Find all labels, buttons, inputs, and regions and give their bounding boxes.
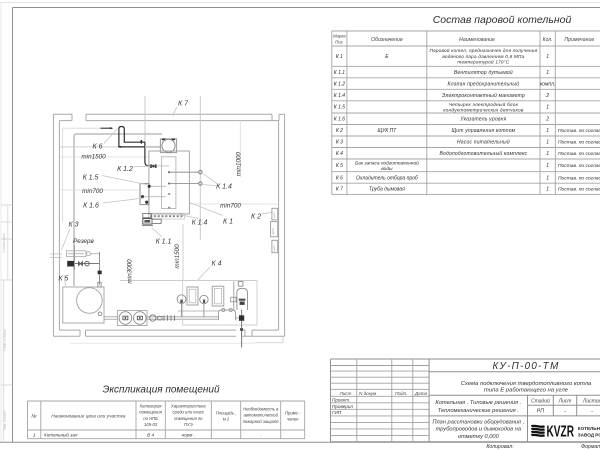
svg-text:Вентилятор дутьевой: Вентилятор дутьевой [454,69,513,76]
svg-text:К 4: К 4 [336,151,343,157]
svg-text:кондуктометрических датчиков: кондуктометрических датчиков [443,108,524,114]
svg-text:К 5: К 5 [336,163,343,169]
svg-text:Дата: Дата [414,391,428,396]
svg-text:Инв. N подл.: Инв. N подл. [3,410,7,430]
svg-text:Наименование: Наименование [459,37,495,43]
svg-text:min700: min700 [220,203,241,210]
svg-text:Площадь ,: Площадь , [216,411,237,416]
svg-text:ЩУК ПТ: ЩУК ПТ [377,128,397,134]
svg-text:Щит управления котлом: Щит управления котлом [451,128,515,134]
svg-text:Постав. по соглас: Постав. по соглас [558,175,600,181]
svg-text:1: 1 [546,128,549,134]
svg-text:ГИП: ГИП [332,410,342,415]
svg-text:К 1.4: К 1.4 [334,93,346,99]
svg-text:105-03: 105-03 [144,422,158,427]
svg-text:Приме -: Приме - [285,411,301,416]
svg-text:В 4: В 4 [147,432,154,437]
svg-text:Подп. и дата: Подп. и дата [3,329,7,350]
svg-text:Постав. по соглас: Постав. по соглас [558,140,600,146]
svg-text:щит: щит [272,212,276,219]
svg-text:2: 2 [545,117,549,123]
svg-text:Указатель уровня: Указатель уровня [460,117,506,123]
svg-text:К 2: К 2 [336,128,343,134]
svg-text:К 5: К 5 [58,276,68,283]
svg-text:2: 2 [545,93,549,99]
svg-text:min700: min700 [82,188,103,195]
svg-text:Тепломеханические решения .: Тепломеханические решения . [438,408,519,414]
svg-text:Четырех электродный блок: Четырех электродный блок [449,101,519,108]
svg-text:-: - [564,409,566,415]
svg-text:пожарной защите: пожарной защите [243,419,280,424]
svg-text:К 6: К 6 [93,144,103,151]
svg-text:КУ-П-00-ТМ: КУ-П-00-ТМ [492,361,559,372]
svg-text:-: - [260,432,262,437]
svg-text:Постав. по соглас: Постав. по соглас [558,128,600,134]
svg-text:KVZR: KVZR [547,423,575,440]
svg-text:Листов: Листов [582,399,600,405]
svg-text:Котельная . Типовые решения .: Котельная . Типовые решения . [435,400,521,406]
svg-text:Проверил: Проверил [332,404,353,409]
svg-text:Характеристика: Характеристика [170,404,206,409]
svg-text:трубопроводов и дымоходов на: трубопроводов и дымоходов на [436,427,521,433]
svg-text:компл.: компл. [540,81,556,87]
svg-text:1: 1 [546,175,549,181]
svg-text:КОТЕЛЬНЫЙ: КОТЕЛЬНЫЙ [578,424,600,431]
svg-text:№: № [31,414,36,420]
svg-text:Труба дымовая: Труба дымовая [369,187,405,193]
svg-text:водяного пара давлением 0,8: водяного пара давлением 0,8 МПа [442,54,524,59]
svg-text:щит: щит [272,245,276,252]
svg-text:Постав. по соглас: Постав. по соглас [558,187,600,193]
svg-text:1: 1 [546,163,549,169]
svg-text:Паровой котел, предназначен дл: Паровой котел, предназначен для получени… [429,47,537,53]
svg-text:Бак запаса подготовленной: Бак запаса подготовленной [355,159,419,166]
svg-text:по НПБ: по НПБ [143,416,158,421]
svg-text:К 1.1: К 1.1 [156,238,172,245]
svg-text:Котельный зал: Котельный зал [44,431,78,437]
svg-text:К 1: К 1 [336,54,343,60]
svg-text:Резерв: Резерв [73,238,94,245]
svg-text:чание: чание [287,417,299,422]
svg-text:N докум: N докум [359,391,377,396]
svg-text:Копировал:: Копировал: [486,444,514,450]
svg-text:1: 1 [546,140,549,146]
svg-text:Примечание: Примечание [564,37,594,43]
svg-text:Марка: Марка [333,34,346,39]
svg-text:К 1.6: К 1.6 [334,117,346,123]
svg-text:воды: воды [381,166,393,172]
svg-text:Наименование цеха или участка: Наименование цеха или участка [51,414,126,420]
svg-text:Охладитель отбора проб: Охладитель отбора проб [356,175,418,181]
svg-text:К 1.2: К 1.2 [117,166,133,173]
svg-text:Экспликация помещений: Экспликация помещений [102,385,220,396]
svg-text:1: 1 [546,187,549,193]
svg-text:Согласовано: Согласовано [2,233,6,253]
svg-text:Проект.: Проект. [332,397,350,402]
svg-text:среди или класс: среди или класс [173,410,205,415]
svg-text:К 2: К 2 [251,214,261,221]
svg-text:Постав. по соглас: Постав. по соглас [558,151,600,157]
svg-text:1: 1 [546,105,549,111]
svg-text:Водоподготовительный комплекс: Водоподготовительный комплекс [440,150,528,157]
svg-text:К 1.4: К 1.4 [192,220,208,227]
svg-text:ЩУК: ЩУК [271,228,275,234]
svg-text:Электроконтактный манометр: Электроконтактный манометр [442,92,525,99]
svg-text:-: - [591,409,593,415]
svg-text:Схема подключения твердотоплив: Схема подключения твердотопливного котла [461,381,592,387]
svg-text:К 1.2: К 1.2 [334,81,346,87]
svg-text:К 3: К 3 [69,222,79,229]
svg-text:Категория: Категория [140,404,163,409]
svg-text:К 1.4: К 1.4 [216,183,232,190]
svg-text:Е: Е [385,54,389,60]
svg-text:Подп.: Подп. [395,391,407,396]
svg-text:автоматической: автоматической [243,413,278,418]
svg-text:Постав. по соглас: Постав. по соглас [558,163,600,169]
svg-text:План расстановки оборудования: План расстановки оборудования , [432,419,524,425]
svg-text:min1000: min1000 [235,152,242,177]
svg-text:К 1.6: К 1.6 [83,203,99,210]
svg-text:К 1: К 1 [223,219,233,226]
svg-text:Кол.: Кол. [543,37,553,43]
svg-text:К 1.5: К 1.5 [334,105,346,111]
svg-text:К 6: К 6 [336,175,343,181]
svg-text:м 2: м 2 [223,417,230,422]
svg-text:ЗАВОД РОС: ЗАВОД РОС [578,433,600,438]
svg-text:1: 1 [546,151,549,157]
svg-text:помещения по: помещения по [174,416,203,421]
svg-text:К 3: К 3 [336,140,343,146]
svg-text:Необходимость в: Необходимость в [243,407,279,412]
svg-text:К 1.1: К 1.1 [334,70,346,76]
svg-text:К 4: К 4 [212,260,222,267]
svg-text:1: 1 [546,70,549,76]
svg-text:ПУЭ: ПУЭ [184,422,193,427]
svg-text:отметку 0,000: отметку 0,000 [458,434,500,440]
svg-text:К 7: К 7 [336,187,343,193]
svg-text:Поз.: Поз. [335,40,343,45]
svg-text:К 7: К 7 [178,101,189,108]
svg-text:Состав паровой котельной: Состав паровой котельной [433,14,572,26]
svg-text:min1500: min1500 [81,154,106,161]
svg-text:min3000: min3000 [127,259,134,284]
svg-text:РП: РП [537,409,544,415]
svg-text:Лист: Лист [558,399,572,405]
svg-text:типа Е работающего на угле: типа Е работающего на угле [484,388,569,394]
svg-text:норм .: норм . [182,432,195,437]
svg-text:Насос питательный: Насос питательный [457,139,510,146]
svg-text:Обозначение: Обозначение [371,37,403,43]
svg-text:помещения: помещения [139,410,162,415]
svg-text:К 1.5: К 1.5 [83,175,99,182]
svg-text:1: 1 [33,432,36,437]
svg-text:Клапан предохранительный: Клапан предохранительный [448,80,520,87]
svg-text:1: 1 [546,54,549,60]
svg-text:температурой 170°С: температурой 170°С [457,58,509,64]
svg-text:Стадий: Стадий [531,398,550,405]
svg-text:min1500: min1500 [174,244,181,269]
svg-text:Формат: Формат [581,444,600,450]
svg-text:Лист: Лист [339,391,352,396]
